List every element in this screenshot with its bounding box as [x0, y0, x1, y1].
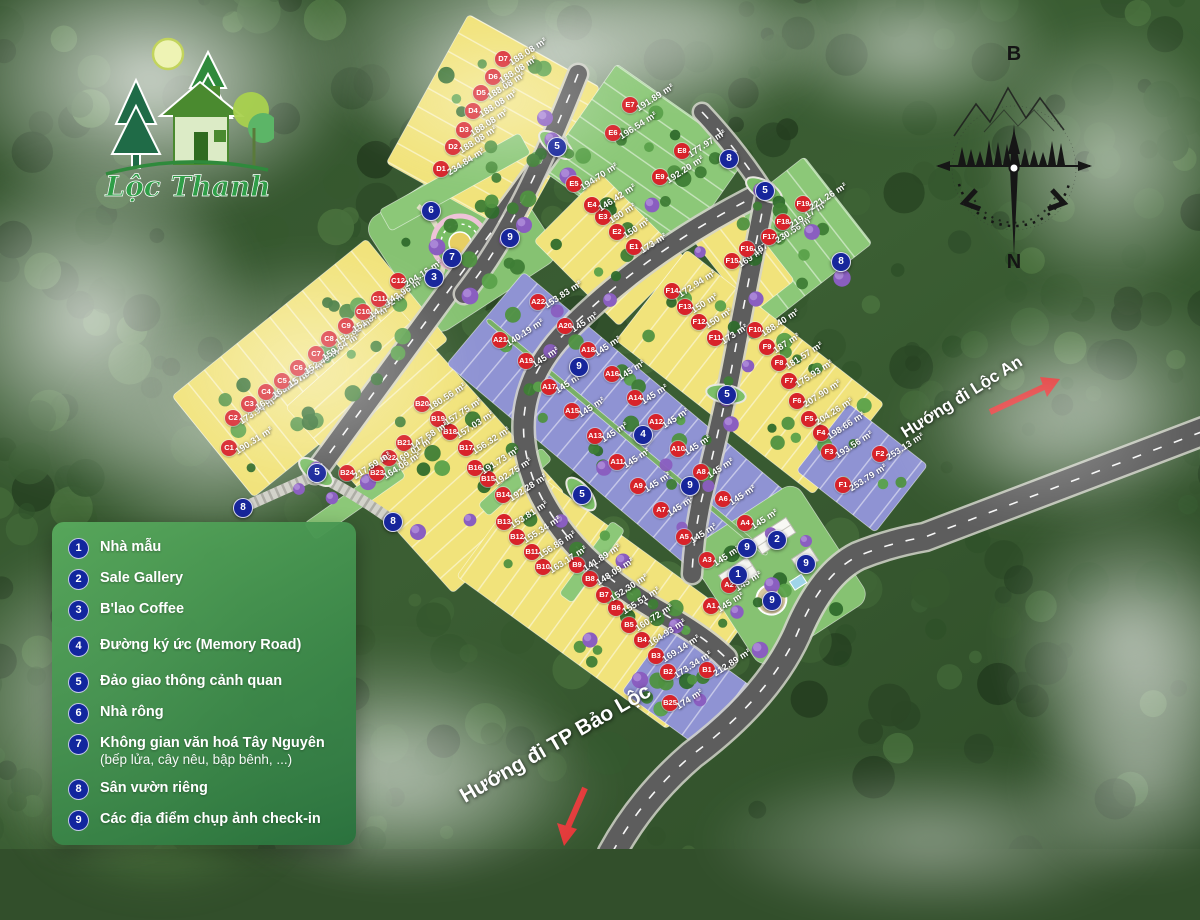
map-marker-4: 4: [633, 425, 653, 445]
map-marker-9: 9: [762, 591, 782, 611]
map-marker-1: 1: [728, 565, 748, 585]
map-marker-9: 9: [737, 538, 757, 558]
map-marker-9: 9: [500, 228, 520, 248]
legend-label: B'lao Coffee: [100, 600, 184, 618]
compass-north-label: B: [1007, 43, 1021, 65]
legend-number-badge: 4: [68, 636, 89, 657]
legend-panel: 1Nhà mẫu2Sale Gallery3B'lao Coffee4Đường…: [52, 522, 356, 845]
map-marker-9: 9: [796, 554, 816, 574]
legend-item-9: 9Các địa điểm chụp ảnh check-in: [68, 810, 342, 831]
map-marker-9: 9: [680, 476, 700, 496]
legend-item-6: 6Nhà rông: [68, 703, 342, 724]
legend-label: Nhà mẫu: [100, 538, 161, 556]
map-marker-5: 5: [307, 463, 327, 483]
legend-items: 1Nhà mẫu2Sale Gallery3B'lao Coffee4Đường…: [68, 538, 342, 831]
map-marker-8: 8: [719, 149, 739, 169]
map-marker-3: 3: [424, 268, 444, 288]
map-marker-7: 7: [442, 248, 462, 268]
map-marker-8: 8: [831, 252, 851, 272]
logo-title: Lộc Thanh: [104, 170, 270, 202]
map-marker-6: 6: [421, 201, 441, 221]
legend-item-7: 7Không gian văn hoá Tây Nguyên(bếp lửa, …: [68, 734, 342, 769]
legend-item-2: 2Sale Gallery: [68, 569, 342, 590]
logo-round-trees-icon: [233, 92, 274, 166]
compass-icon: B N: [926, 32, 1106, 272]
map-marker-8: 8: [383, 512, 403, 532]
legend-number-badge: 1: [68, 538, 89, 559]
legend-item-8: 8Sân vườn riêng: [68, 779, 342, 800]
map-marker-5: 5: [717, 385, 737, 405]
legend-label: Nhà rông: [100, 703, 164, 721]
legend-item-5: 5Đảo giao thông cảnh quan: [68, 672, 342, 693]
project-logo: Lộc Thanh: [48, 22, 274, 202]
legend-number-badge: 8: [68, 779, 89, 800]
legend-item-3: 3B'lao Coffee: [68, 600, 342, 621]
logo-house-icon: [160, 82, 242, 164]
legend-label: Các địa điểm chụp ảnh check-in: [100, 810, 321, 828]
legend-number-badge: 3: [68, 600, 89, 621]
legend-item-1: 1Nhà mẫu: [68, 538, 342, 559]
legend-sublabel: (bếp lửa, cây nêu, bập bênh, ...): [100, 752, 325, 768]
logo-sun-icon: [153, 39, 183, 69]
map-marker-5: 5: [755, 181, 775, 201]
legend-label: Sân vườn riêng: [100, 779, 208, 797]
legend-number-badge: 2: [68, 569, 89, 590]
compass-south-label: N: [1007, 251, 1021, 272]
legend-label: Không gian văn hoá Tây Nguyên(bếp lửa, c…: [100, 734, 325, 769]
legend-number-badge: 9: [68, 810, 89, 831]
legend-number-badge: 7: [68, 734, 89, 755]
map-marker-9: 9: [569, 357, 589, 377]
legend-number-badge: 6: [68, 703, 89, 724]
legend-label: Sale Gallery: [100, 569, 183, 587]
legend-label: Đảo giao thông cảnh quan: [100, 672, 282, 690]
map-marker-5: 5: [547, 137, 567, 157]
site-plan-scene: A1145 m²A2145 m²A3145 m²A4145 m²A5145 m²…: [0, 0, 1200, 849]
map-marker-2: 2: [767, 530, 787, 550]
map-marker-8: 8: [233, 498, 253, 518]
legend-label: Đường ký ức (Memory Road): [100, 636, 301, 654]
map-marker-5: 5: [572, 485, 592, 505]
legend-number-badge: 5: [68, 672, 89, 693]
legend-item-4: 4Đường ký ức (Memory Road): [68, 636, 342, 657]
